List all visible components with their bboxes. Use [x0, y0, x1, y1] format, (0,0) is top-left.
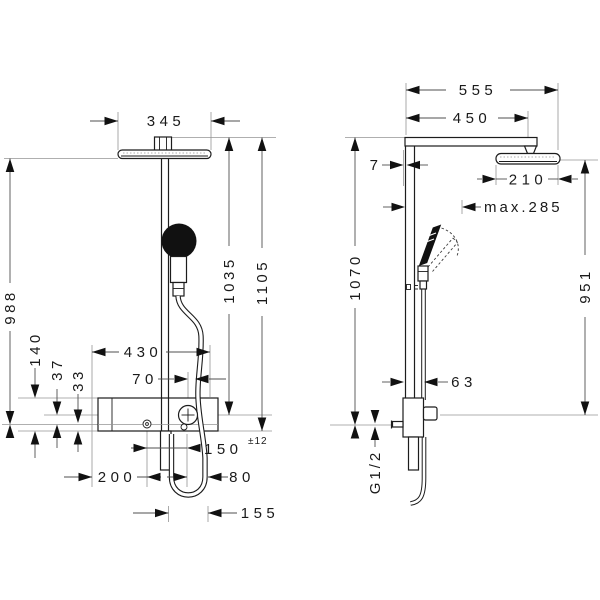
- front-dimensions: 345 1035 1105 988 140: [2, 113, 279, 522]
- hand-shower-handle-front: [171, 257, 187, 283]
- side-view: 555 450 7 210 max.285: [330, 82, 598, 504]
- hand-shower-head-front: [162, 224, 197, 259]
- hose-connector-front: [173, 283, 184, 297]
- column-holder-mount: [407, 285, 411, 290]
- dim-valve-height: 140: [27, 331, 44, 367]
- dim-offset-37: 37: [49, 357, 66, 381]
- dim-max-reach: max.285: [484, 199, 563, 216]
- supply-connection-mark: [143, 420, 151, 428]
- dim-connection-spacing: 150: [204, 441, 243, 458]
- dim-overhead-width: 345: [147, 113, 186, 130]
- dim-wall-gap: 7: [370, 157, 383, 174]
- hand-shower-front: [162, 224, 197, 297]
- overhead-shower-side: [496, 154, 560, 165]
- dim-height-951: 951: [577, 268, 594, 304]
- dim-offset-70: 70: [132, 371, 158, 388]
- shower-hose-side: [411, 289, 425, 504]
- hand-shower-solid-position: [419, 225, 441, 267]
- dim-height-1035: 1035: [221, 256, 238, 303]
- dim-arm-reach: 450: [453, 110, 492, 127]
- thermostat-valve-side: [392, 398, 438, 470]
- dim-height-988: 988: [2, 289, 19, 325]
- dim-offset-80: 80: [229, 469, 255, 486]
- dim-thread: G1/2: [367, 450, 384, 495]
- shower-column-front: [162, 159, 169, 399]
- drawing-canvas: 345 1035 1105 988 140: [0, 0, 600, 600]
- front-view: 345 1035 1105 988 140: [2, 112, 279, 522]
- dim-head-depth: 210: [509, 172, 548, 189]
- shower-head-front: [118, 150, 211, 159]
- dim-height-1070: 1070: [347, 253, 364, 300]
- dim-hose-loop-width: 155: [241, 505, 280, 522]
- technical-drawing: 345 1035 1105 988 140: [0, 0, 600, 600]
- valve-handle-side: [424, 407, 438, 420]
- front-reference-lines: [2, 112, 276, 522]
- dim-connection-tolerance: ±12: [248, 436, 268, 447]
- dim-valve-width: 430: [124, 344, 163, 361]
- shower-arm-side: [405, 138, 537, 154]
- head-connector-side: [525, 146, 537, 154]
- hand-shower-holder: [418, 266, 428, 281]
- valve-button-front: [181, 424, 187, 430]
- dim-arm-total: 555: [459, 82, 498, 99]
- dim-offset-200: 200: [98, 469, 137, 486]
- dim-offset-33: 33: [70, 368, 87, 392]
- supply-nipple-side: [393, 422, 404, 428]
- dim-total-height: 1105: [254, 259, 271, 305]
- dim-valve-depth: 63: [451, 374, 477, 391]
- shower-column-side: [406, 146, 415, 398]
- lower-pipe-side: [409, 437, 419, 470]
- overhead-shower-front: [118, 137, 211, 159]
